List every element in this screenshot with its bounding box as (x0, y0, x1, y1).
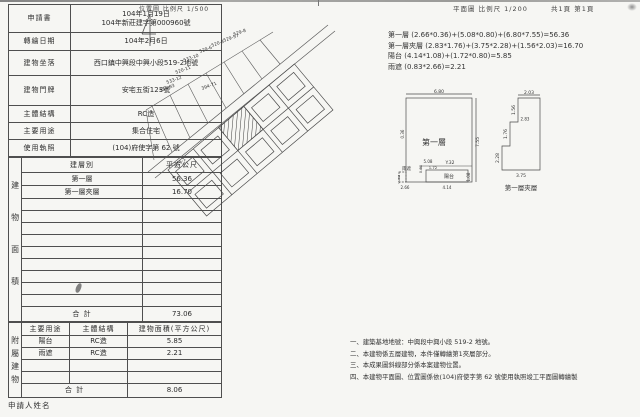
table-row: 陽台 RC造 5.85 (9, 336, 222, 348)
empty-row (9, 372, 222, 384)
calc-line: 第一層夾層 (2.83*1.76)+(3.75*2.28)+(1.56*2.03… (388, 41, 640, 52)
note-line: 二、本建物係五層建物，本件僅轉繪第1夾層部分。 (350, 349, 638, 361)
annex-area: 2.21 (128, 348, 222, 360)
area-calculations: 第一層 (2.66*0.36)+(5.08*0.80)+(6.80*7.55)=… (388, 30, 640, 72)
first-floor-title: 第一層 (422, 137, 446, 147)
annex-header-use: 主要用途 (22, 323, 70, 336)
dim-label: 0.36 (400, 129, 405, 138)
floor-name: 第一層夾層 (22, 186, 143, 199)
page-number: 共1頁 第1頁 (551, 3, 594, 13)
area-total-label: 合 計 (22, 307, 143, 322)
total-row: 合 計 8.06 (9, 384, 222, 398)
annex-use: 陽台 (22, 336, 70, 348)
dim-label: 2.28 (495, 153, 501, 163)
calc-line: 雨遮 (0.83*2.66)=2.21 (388, 62, 640, 73)
dim-label: 2.83 (521, 117, 530, 122)
area-side-label: 建物面積 (9, 158, 22, 322)
mezzanine-labels: 2.03 1.56 1.76 2.83 2.28 3.75 第一層夾層 (495, 90, 537, 192)
corner-mark (627, 3, 637, 11)
total-row: 合 計 73.06 (9, 307, 222, 322)
scan-top-edge (0, 0, 640, 2)
table-row: 附屬建物 主要用途 主體結構 建物面積(平方公尺) (9, 323, 222, 336)
annex-area: 5.85 (128, 336, 222, 348)
info-label: 建物坐落 (9, 51, 71, 76)
info-label: 申請書 (9, 5, 71, 33)
empty-row (9, 247, 222, 259)
notes-block: 一、建築基地地號：中興段中興小段 519-2 地號。 二、本建物係五層建物，本件… (350, 337, 638, 383)
dim-label: 5.08 (424, 159, 433, 164)
dim-label: 4.14 (443, 185, 452, 190)
level-mark: Y.32 (445, 160, 455, 166)
floor-plan-scale: 平面圖 比例尺 1/200 (453, 3, 528, 13)
annex-side-label: 附屬建物 (9, 323, 22, 398)
note-line: 一、建築基地地號：中興段中興小段 519-2 地號。 (350, 337, 638, 349)
empty-row (9, 271, 222, 283)
parcel-boundaries (146, 32, 280, 160)
info-label: 主要用途 (9, 123, 71, 140)
dim-label: 7.55 (475, 137, 481, 147)
floor-name: 第一層 (22, 173, 143, 186)
empty-row (9, 283, 222, 295)
annex-structure: RC造 (70, 348, 128, 360)
mezzanine-title: 第一層夾層 (505, 183, 538, 192)
dim-label: 6.80 (434, 89, 444, 95)
info-label: 建物門牌 (9, 76, 71, 106)
dim-label: 1.56 (511, 105, 517, 115)
note-line: 三、本成果圖斜線部分係本案建物位置。 (350, 360, 638, 372)
parcel-label: 533-10 (183, 53, 200, 64)
dim-label: 1.08 (466, 172, 471, 181)
balcony-label: 陽台 (444, 173, 454, 180)
annex-table: 附屬建物 主要用途 主體結構 建物面積(平方公尺) 陽台 RC造 5.85 雨遮… (8, 322, 222, 398)
floor-plans: 6.80 7.55 0.36 第一層 5.08 0.80 1.72 Y.32 陽… (398, 88, 638, 218)
empty-row (9, 295, 222, 307)
canopy-label: 雨遮 (402, 165, 411, 172)
dim-label: 1.72 (429, 165, 438, 170)
dim-label: 2.03 (524, 90, 534, 96)
note-line: 四、本建物平面圖、位置圖係依(104)府使字第 62 號使用執照竣工平面圖轉繪製 (350, 372, 638, 384)
annex-structure: RC造 (70, 336, 128, 348)
parcel-label: 394-71 (201, 81, 218, 92)
dim-label: 3.75 (516, 173, 526, 179)
dim-label: 0.80 (418, 164, 423, 173)
empty-row (9, 360, 222, 372)
location-map: 534-93 533-12 520-11 533-10 529-6 520-8 … (138, 10, 400, 238)
dim-label: 1.76 (503, 129, 509, 139)
annex-total-label: 合 計 (22, 384, 128, 398)
table-row: 雨遮 RC造 2.21 (9, 348, 222, 360)
empty-row (9, 259, 222, 271)
dim-label: 2.66 (401, 185, 410, 190)
fold-mark (318, 0, 319, 6)
parcel-label: 520-11 (175, 65, 192, 76)
parcel-label: 529-8 (233, 28, 247, 38)
annex-total-value: 8.06 (128, 384, 222, 398)
area-total-value: 73.06 (143, 307, 222, 322)
info-label: 轉繪日期 (9, 33, 71, 51)
calc-line: 第一層 (2.66*0.36)+(5.08*0.80)+(6.80*7.55)=… (388, 30, 640, 41)
annex-header-structure: 主體結構 (70, 323, 128, 336)
calc-line: 陽台 (4.14*1.08)+(1.72*0.80)=5.85 (388, 51, 640, 62)
area-header-floor: 建層別 (22, 158, 143, 173)
annex-header-area: 建物面積(平方公尺) (128, 323, 222, 336)
parcel-label: 533-12 (166, 75, 183, 86)
applicant-label: 申請人姓名 (8, 400, 51, 411)
survey-document: 申請書 104年1月19日 104年新莊建字第000960號 轉繪日期 104年… (0, 0, 640, 417)
info-label: 主體結構 (9, 106, 71, 123)
subject-building-hatch (219, 106, 264, 150)
first-floor-labels: 6.80 7.55 0.36 第一層 5.08 0.80 1.72 Y.32 陽… (398, 89, 481, 190)
annex-use: 雨遮 (22, 348, 70, 360)
info-label: 使用執照 (9, 140, 71, 157)
building-block (168, 64, 333, 216)
north-arrow (142, 14, 156, 46)
dim-label: 0.83 (398, 174, 401, 183)
